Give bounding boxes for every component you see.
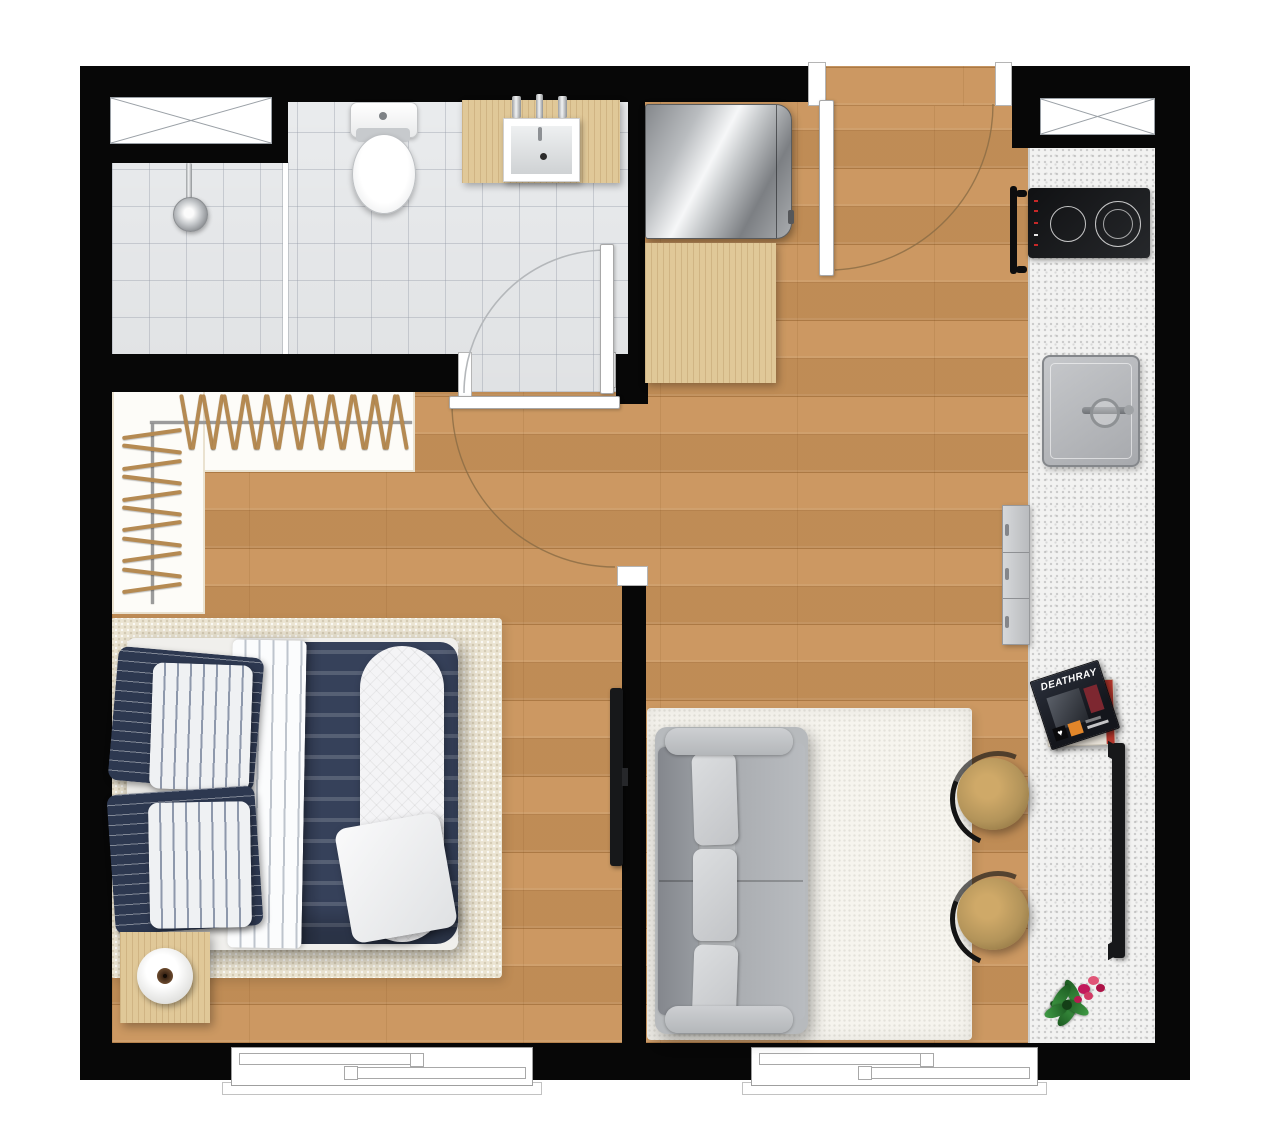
- bedroom-balcony-window: [231, 1047, 533, 1086]
- bedroom-door-jamb: [617, 566, 648, 586]
- tv-wall-mount: [622, 768, 628, 786]
- bed-cushion: [334, 812, 459, 945]
- wall-entry-corner: [1012, 102, 1040, 148]
- shower-head: [173, 197, 208, 232]
- plant-center: [1062, 1000, 1072, 1010]
- pillow-white-top: [149, 662, 253, 791]
- entry-door-jamb-right: [995, 62, 1012, 106]
- entry-bench: [645, 243, 776, 383]
- oven-handle-prong-bottom: [1016, 266, 1027, 273]
- bathroom-window: [110, 97, 272, 144]
- wall-bathroom-entry-divider: [628, 66, 645, 392]
- bathroom-door: [600, 244, 614, 394]
- wall-left: [80, 66, 112, 1080]
- wall-under-kitchen-window: [1040, 133, 1155, 148]
- nightstand: [120, 932, 210, 1023]
- kitchen-faucet-ring: [1090, 398, 1120, 428]
- bed: [127, 638, 458, 950]
- cooktop: [1028, 188, 1150, 258]
- bar-stool-1: [957, 758, 1029, 830]
- entry-vestibule-floor: [826, 66, 995, 106]
- kitchen-counter: [1028, 147, 1157, 1043]
- mirrored-cabinet: [645, 104, 792, 239]
- living-room-tv: [1112, 743, 1125, 958]
- toilet-bowl: [352, 134, 416, 214]
- faucet-handle-right: [558, 96, 567, 118]
- dishwasher-drawer-front: [1002, 505, 1030, 645]
- oven-handle: [1010, 186, 1017, 274]
- bathroom-sink: [503, 118, 580, 182]
- wall-bathroom-bottom: [112, 354, 458, 392]
- bathroom-door-jamb-left: [458, 352, 472, 402]
- table-lamp: [137, 948, 193, 1004]
- oven-handle-prong-top: [1016, 190, 1027, 197]
- wall-right: [1155, 66, 1190, 1080]
- pillow-white-bottom: [148, 801, 252, 929]
- wall-top: [288, 66, 808, 102]
- kitchen-faucet-knob: [1124, 405, 1134, 415]
- wall-bedroom-divider: [622, 585, 646, 1043]
- cabinet-handle: [788, 210, 794, 224]
- floor-plan: DEATHRAY ♥: [0, 0, 1280, 1138]
- flower-pot: [1044, 972, 1114, 1038]
- kitchen-window: [1040, 98, 1155, 135]
- faucet-handle-left: [512, 96, 521, 118]
- bedroom-tv: [610, 688, 623, 866]
- living-balcony-window: [751, 1047, 1038, 1086]
- toilet-button: [379, 112, 387, 120]
- bedroom-door: [449, 396, 620, 409]
- sofa: [655, 727, 808, 1034]
- wall-bathroom-stub: [616, 354, 648, 404]
- kitchen-sink: [1042, 355, 1140, 467]
- entry-door: [819, 100, 834, 276]
- bar-stool-2: [957, 878, 1029, 950]
